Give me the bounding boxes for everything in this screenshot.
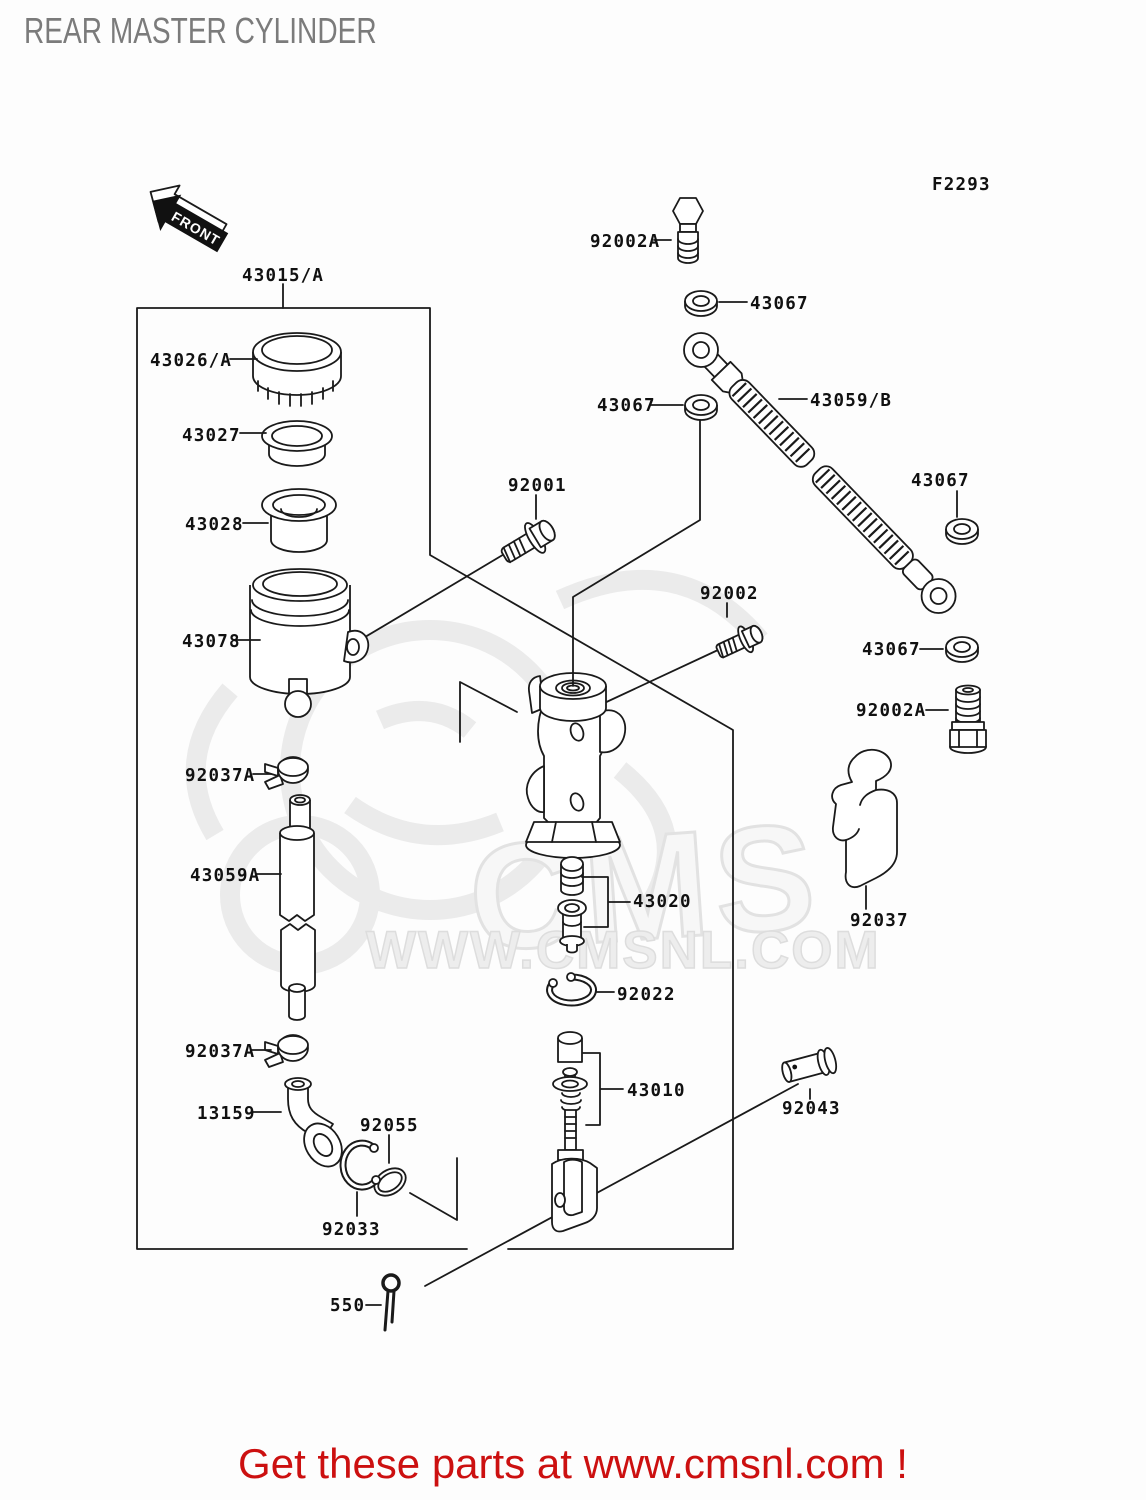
- part-label-92002[interactable]: 92002: [700, 584, 759, 604]
- clevis-pin-92043: [780, 1047, 839, 1086]
- part-label-43078[interactable]: 43078: [182, 632, 241, 652]
- part-label-43067-right-upper[interactable]: 43067: [911, 471, 970, 491]
- cotter-pin-550: [383, 1275, 399, 1330]
- valve-kit-43020: [558, 857, 586, 953]
- washer-43067-right-upper: [946, 519, 978, 544]
- elbow-13159: [285, 1078, 350, 1174]
- part-label-43067-mid[interactable]: 43067: [597, 396, 656, 416]
- part-label-43028[interactable]: 43028: [185, 515, 244, 535]
- bolt-92001: [496, 513, 562, 571]
- footer-promo: Get these parts at www.cmsnl.com !: [0, 1440, 1146, 1488]
- part-label-43026a[interactable]: 43026/A: [150, 351, 232, 371]
- clamp-92037a-lower: [265, 1035, 308, 1067]
- part-label-92037a-upper[interactable]: 92037A: [185, 766, 255, 786]
- part-label-43067-top[interactable]: 43067: [750, 294, 809, 314]
- watermark-url-text: WWW.CMSNL.COM: [366, 921, 881, 980]
- part-label-92043[interactable]: 92043: [782, 1099, 841, 1119]
- clip-92037: [832, 750, 897, 887]
- cap-43026a: [253, 333, 341, 406]
- part-label-92037a-lower[interactable]: 92037A: [185, 1042, 255, 1062]
- washer-43067-top: [685, 291, 717, 316]
- part-label-43059a[interactable]: 43059A: [190, 866, 260, 886]
- part-label-92001[interactable]: 92001: [508, 476, 567, 496]
- part-label-43067-right-lower[interactable]: 43067: [862, 640, 921, 660]
- figure-code: F2293: [932, 175, 991, 195]
- bolt-92002a-right: [950, 686, 986, 754]
- parts-diagram-page: REAR MASTER CYLINDER CMS WWW.CMSNL.COM: [0, 0, 1146, 1500]
- part-label-550[interactable]: 550: [330, 1296, 365, 1316]
- part-label-13159[interactable]: 13159: [197, 1104, 256, 1124]
- front-arrow: FRONT: [136, 175, 237, 261]
- circlip-92033: [343, 1143, 380, 1187]
- washer-43067-mid: [685, 395, 717, 420]
- part-label-92055[interactable]: 92055: [360, 1116, 419, 1136]
- part-label-92022[interactable]: 92022: [617, 985, 676, 1005]
- part-label-92033[interactable]: 92033: [322, 1220, 381, 1240]
- ring-43027: [262, 421, 332, 466]
- part-label-92037[interactable]: 92037: [850, 911, 909, 931]
- part-label-43020[interactable]: 43020: [633, 892, 692, 912]
- part-label-92002a-right[interactable]: 92002A: [856, 701, 926, 721]
- part-label-43015a[interactable]: 43015/A: [242, 266, 324, 286]
- washer-43067-right-lower: [946, 637, 978, 662]
- part-label-43059b[interactable]: 43059/B: [810, 391, 892, 411]
- part-label-43010[interactable]: 43010: [627, 1081, 686, 1101]
- pushrod-43010: [552, 1032, 597, 1232]
- diaphragm-43028: [262, 489, 336, 552]
- parts-diagram: CMS WWW.CMSNL.COM FRONT: [0, 0, 1146, 1500]
- bolt-92002a-top: [673, 198, 703, 263]
- part-label-43027[interactable]: 43027: [182, 426, 241, 446]
- part-label-92002a-top[interactable]: 92002A: [590, 232, 660, 252]
- hose-43059a: [280, 795, 315, 1020]
